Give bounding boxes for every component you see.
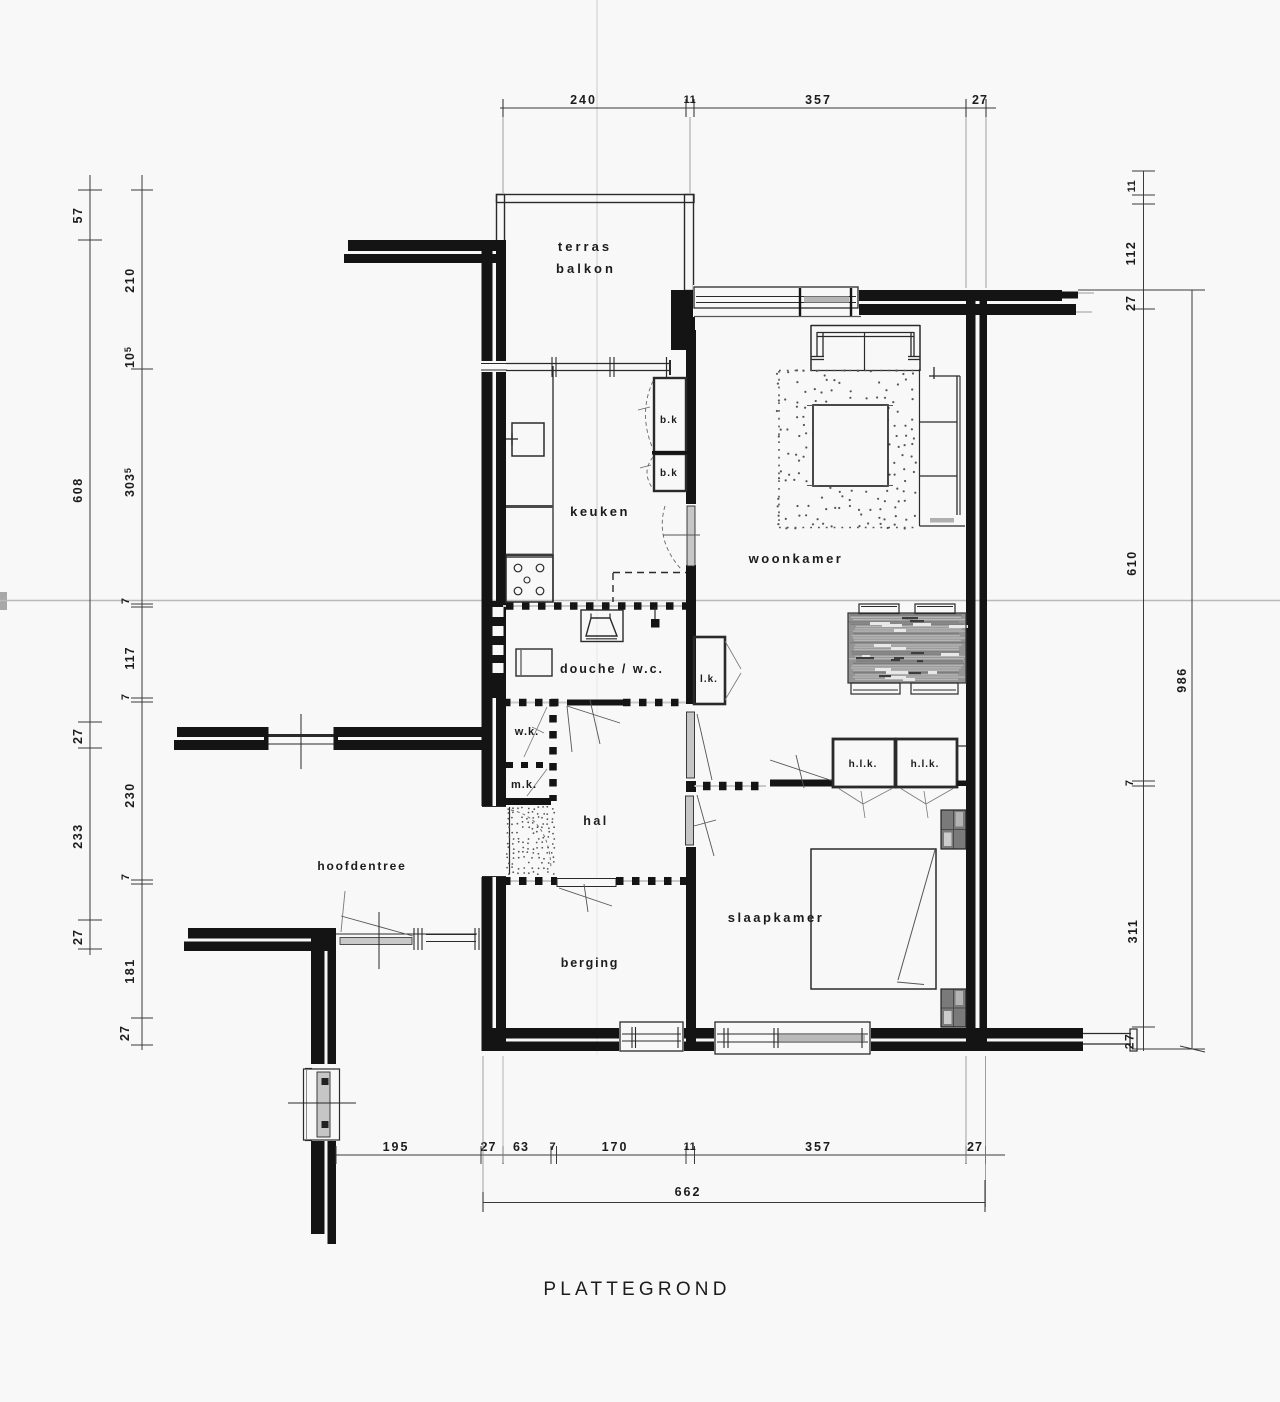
svg-text:h.l.k.: h.l.k.: [911, 759, 940, 770]
svg-text:610: 610: [1125, 550, 1139, 575]
svg-text:240: 240: [570, 93, 597, 107]
svg-text:195: 195: [383, 1140, 410, 1154]
svg-text:608: 608: [71, 477, 85, 502]
svg-text:douche / w.c.: douche / w.c.: [560, 662, 664, 676]
svg-text:27: 27: [1123, 1033, 1137, 1049]
svg-text:233: 233: [71, 823, 85, 848]
svg-text:27: 27: [71, 929, 85, 945]
svg-text:b.k: b.k: [660, 468, 678, 479]
svg-text:27: 27: [967, 1140, 983, 1154]
svg-text:7: 7: [120, 598, 132, 604]
svg-text:woonkamer: woonkamer: [748, 551, 844, 566]
svg-text:keuken: keuken: [570, 504, 630, 519]
svg-text:27: 27: [71, 728, 85, 744]
svg-text:11: 11: [684, 1141, 697, 1153]
svg-text:170: 170: [602, 1140, 629, 1154]
svg-text:27: 27: [972, 93, 988, 107]
svg-text:27: 27: [1124, 295, 1138, 311]
svg-text:357: 357: [805, 93, 832, 107]
svg-text:11: 11: [1126, 180, 1138, 193]
svg-text:w.k.: w.k.: [514, 726, 539, 738]
svg-text:986: 986: [1175, 667, 1189, 692]
svg-text:b.k: b.k: [660, 415, 678, 426]
svg-text:slaapkamer: slaapkamer: [728, 910, 825, 925]
svg-text:7: 7: [120, 874, 132, 880]
svg-text:7: 7: [549, 1141, 555, 1153]
svg-text:hoofdentree: hoofdentree: [317, 859, 406, 873]
svg-text:357: 357: [805, 1140, 832, 1154]
svg-text:m.k.: m.k.: [511, 779, 537, 791]
svg-text:l.k.: l.k.: [700, 674, 718, 685]
svg-text:11: 11: [684, 94, 697, 106]
svg-text:balkon: balkon: [556, 261, 616, 276]
svg-text:27: 27: [118, 1025, 132, 1041]
svg-text:hal: hal: [583, 814, 609, 828]
svg-text:63: 63: [513, 1140, 529, 1154]
svg-text:117: 117: [123, 646, 137, 669]
svg-text:7: 7: [1124, 780, 1136, 786]
svg-text:662: 662: [675, 1185, 702, 1199]
svg-text:terras: terras: [558, 239, 612, 254]
svg-text:h.l.k.: h.l.k.: [849, 759, 878, 770]
svg-text:311: 311: [1126, 919, 1140, 944]
svg-text:57: 57: [71, 207, 85, 224]
svg-text:berging: berging: [561, 956, 619, 970]
svg-text:PLATTEGROND: PLATTEGROND: [543, 1279, 730, 1300]
svg-text:181: 181: [123, 958, 137, 983]
svg-text:112: 112: [1124, 241, 1138, 266]
svg-text:210: 210: [123, 267, 137, 292]
svg-text:7: 7: [120, 694, 132, 700]
svg-text:230: 230: [123, 782, 137, 807]
